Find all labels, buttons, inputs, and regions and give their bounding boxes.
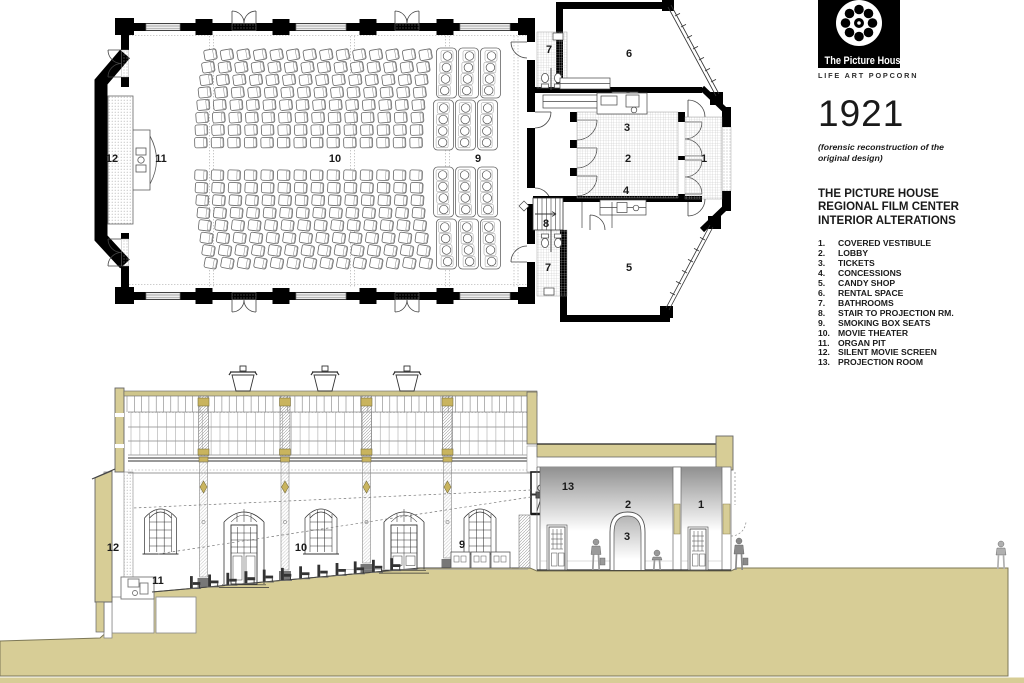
seat xyxy=(410,125,423,136)
seat xyxy=(213,207,226,219)
seat xyxy=(234,61,248,73)
legend-item-label: SILENT MOVIE SCREEN xyxy=(838,347,937,357)
seat xyxy=(377,182,390,193)
seat xyxy=(201,61,215,73)
seat xyxy=(295,195,308,206)
seat-profile xyxy=(247,577,255,580)
seat xyxy=(229,112,242,123)
column-shaft xyxy=(281,462,289,570)
seat xyxy=(248,87,261,99)
seat xyxy=(228,170,241,181)
legend-item-label: CANDY SHOP xyxy=(838,278,895,288)
box-seat xyxy=(439,194,448,203)
seat xyxy=(362,99,375,110)
door-swing-dashed xyxy=(731,472,746,536)
seat xyxy=(196,112,209,123)
seat xyxy=(311,125,324,136)
seat xyxy=(416,61,430,73)
seat xyxy=(197,207,210,219)
seat xyxy=(245,125,258,136)
seat xyxy=(303,48,317,60)
seat xyxy=(263,99,276,110)
box-seat xyxy=(462,205,471,214)
seat xyxy=(287,257,301,269)
box-seat xyxy=(485,234,494,243)
box-seat xyxy=(443,257,452,266)
seat xyxy=(198,220,212,232)
plan-room-label: 10 xyxy=(329,153,341,165)
seat xyxy=(352,48,366,60)
seat xyxy=(230,207,243,219)
seat xyxy=(204,257,218,269)
seat xyxy=(312,112,325,123)
seat xyxy=(296,99,309,110)
seat xyxy=(216,74,230,86)
seat xyxy=(394,125,407,136)
seat xyxy=(362,207,375,219)
seat xyxy=(261,137,274,148)
box-seat xyxy=(441,75,450,84)
seat xyxy=(344,170,357,181)
seat xyxy=(233,232,247,244)
box-seat xyxy=(483,127,492,136)
seat xyxy=(228,137,241,148)
column-shaft xyxy=(363,462,371,563)
seat xyxy=(402,48,416,60)
seat xyxy=(199,74,213,86)
box-seat xyxy=(442,63,451,72)
seat xyxy=(212,195,225,206)
seat xyxy=(397,87,410,99)
logo-tagline: LIFE ART POPCORN xyxy=(818,71,1018,80)
box-seat xyxy=(439,104,448,113)
seat xyxy=(412,99,425,110)
pedestrian-figure xyxy=(734,538,748,570)
roof-truss xyxy=(127,396,535,455)
seat xyxy=(415,74,429,86)
seat-profile xyxy=(245,571,248,584)
seat xyxy=(248,220,262,232)
seat xyxy=(327,182,340,193)
seat xyxy=(264,220,278,232)
seat xyxy=(297,87,310,99)
seat xyxy=(328,112,341,123)
seat xyxy=(330,87,343,99)
legend-item-label: MOVIE THEATER xyxy=(838,328,908,338)
legend-item-label: BATHROOMS xyxy=(838,298,894,308)
seat xyxy=(400,61,414,73)
plan-room-label: 5 xyxy=(626,262,632,274)
plan-room-label: 8 xyxy=(543,218,549,230)
seat xyxy=(363,87,376,99)
seat xyxy=(230,99,243,110)
seat xyxy=(220,257,234,269)
seat xyxy=(394,182,407,193)
seat-profile xyxy=(354,561,357,574)
seat xyxy=(280,207,293,219)
seat xyxy=(382,74,396,86)
seat xyxy=(317,61,331,73)
seat xyxy=(268,61,282,73)
legend-item-label: TICKETS xyxy=(838,258,875,268)
seat xyxy=(317,244,331,256)
seat xyxy=(263,207,276,219)
section-room-label: 10 xyxy=(295,542,307,554)
info-panel: The Picture House LIFE ART POPCORN 1921 … xyxy=(818,0,1018,368)
seat xyxy=(398,74,412,86)
column-capital xyxy=(442,449,453,455)
roof-band xyxy=(124,391,537,396)
pedestrian-figure xyxy=(996,541,1006,569)
year-title: 1921 xyxy=(818,93,1018,135)
seat xyxy=(398,232,412,244)
seat xyxy=(419,257,433,269)
seat xyxy=(251,244,265,256)
plan-room-label: 3 xyxy=(624,122,630,134)
seat xyxy=(361,112,374,123)
seat xyxy=(299,74,313,86)
box-seat xyxy=(486,246,495,255)
seat xyxy=(365,74,379,86)
seat xyxy=(282,232,296,244)
project-title-line1: THE PICTURE HOUSE xyxy=(818,188,1018,202)
cross-section xyxy=(0,366,1024,683)
seat xyxy=(310,137,323,148)
box-seat xyxy=(441,223,450,232)
seat xyxy=(361,182,374,193)
seat xyxy=(314,220,328,232)
seat xyxy=(198,87,211,99)
arched-window xyxy=(462,509,498,554)
seat xyxy=(411,112,424,123)
box-seat xyxy=(463,234,472,243)
seat xyxy=(413,220,427,232)
seat xyxy=(278,125,291,136)
seat xyxy=(379,99,392,110)
seat xyxy=(233,74,247,86)
seat xyxy=(383,61,397,73)
seat-profile xyxy=(302,572,310,575)
plan-room-label: 12 xyxy=(106,153,118,165)
seat xyxy=(281,220,295,232)
seat-profile xyxy=(336,563,339,576)
box-seat xyxy=(439,115,448,124)
room-legend: 1.COVERED VESTIBULE2.LOBBY3.TICKETS4.CON… xyxy=(818,239,1018,368)
seat xyxy=(212,182,225,193)
column-shaft xyxy=(200,462,208,577)
seat xyxy=(379,207,392,219)
box-seat xyxy=(439,127,448,136)
box-seat xyxy=(443,52,452,61)
seat xyxy=(270,48,284,60)
seat xyxy=(264,87,277,99)
seat xyxy=(286,48,300,60)
box-seat xyxy=(438,171,447,180)
seat xyxy=(229,195,242,206)
seat xyxy=(213,99,226,110)
seat-profile xyxy=(208,575,211,588)
seat xyxy=(332,74,346,86)
seat xyxy=(346,207,359,219)
seat xyxy=(246,207,259,219)
box-seat xyxy=(440,86,449,95)
seat xyxy=(316,232,330,244)
seat xyxy=(360,137,373,148)
seat xyxy=(369,257,383,269)
box-seat xyxy=(483,182,492,191)
seat-profile xyxy=(372,560,375,573)
floor-plan xyxy=(101,0,731,322)
seat xyxy=(261,170,274,181)
box-seat xyxy=(460,138,469,147)
seat-profile xyxy=(357,567,365,570)
section-room-label: 12 xyxy=(107,542,119,554)
seat xyxy=(200,232,214,244)
seat xyxy=(369,48,383,60)
seat xyxy=(244,170,257,181)
seat xyxy=(249,232,263,244)
seat xyxy=(211,170,224,181)
section-left-wall xyxy=(92,388,124,632)
film-reel-icon xyxy=(818,0,900,52)
project-title-line2: REGIONAL FILM CENTER xyxy=(818,201,1018,215)
seat-profile xyxy=(317,565,320,578)
basement xyxy=(104,472,196,638)
seat xyxy=(378,195,391,206)
seat xyxy=(253,48,267,60)
seat xyxy=(214,87,227,99)
seat xyxy=(315,74,329,86)
seat xyxy=(246,99,259,110)
section-room-label: 2 xyxy=(625,499,631,511)
box-seat xyxy=(482,171,491,180)
box-seat xyxy=(438,138,447,147)
seat xyxy=(266,74,280,86)
hall-right-parapet xyxy=(527,392,537,444)
plan-room-label: 7 xyxy=(546,44,552,56)
column-capital xyxy=(362,457,371,462)
box-seat xyxy=(464,246,473,255)
seat xyxy=(314,87,327,99)
seat xyxy=(277,170,290,181)
plan-room-label: 4 xyxy=(623,185,630,197)
seat xyxy=(313,207,326,219)
plan-room-label: 9 xyxy=(475,153,481,165)
box-seat xyxy=(440,205,449,214)
seat xyxy=(377,170,390,181)
seat xyxy=(215,220,229,232)
seat xyxy=(297,220,311,232)
proscenium-wall xyxy=(519,515,530,568)
seat xyxy=(295,112,308,123)
seat xyxy=(303,257,317,269)
seat xyxy=(218,61,232,73)
seat xyxy=(393,170,406,181)
legend-item-label: SMOKING BOX SEATS xyxy=(838,318,930,328)
seat-profile xyxy=(226,573,229,586)
section-room-label: 13 xyxy=(562,481,574,493)
seat xyxy=(319,48,333,60)
seat xyxy=(349,232,363,244)
seat-profile xyxy=(211,581,219,584)
seat-profile xyxy=(190,576,193,589)
legend-item-label: CONCESSIONS xyxy=(838,268,902,278)
box-seat xyxy=(485,223,494,232)
seat xyxy=(195,125,208,136)
seat xyxy=(216,232,230,244)
seat xyxy=(294,182,307,193)
seat xyxy=(353,257,367,269)
seat xyxy=(251,61,265,73)
seat xyxy=(235,244,249,256)
seat xyxy=(296,207,309,219)
arched-door xyxy=(379,509,429,573)
seat-profile xyxy=(284,574,292,577)
box-seat xyxy=(483,104,492,113)
seat xyxy=(395,99,408,110)
box-seat xyxy=(442,246,451,255)
seat xyxy=(364,220,378,232)
seat xyxy=(328,195,341,206)
seat xyxy=(270,257,284,269)
logo-title: The Picture House xyxy=(825,55,894,67)
box-seat xyxy=(462,86,471,95)
seat xyxy=(347,87,360,99)
seat xyxy=(268,244,282,256)
seat xyxy=(334,61,348,73)
seat xyxy=(261,182,274,193)
wall-gap xyxy=(527,446,537,472)
seat xyxy=(345,112,358,123)
seat xyxy=(220,48,234,60)
column-capital xyxy=(442,398,453,406)
seat xyxy=(196,195,209,206)
seat xyxy=(400,244,414,256)
seat xyxy=(395,207,408,219)
seat xyxy=(212,112,225,123)
seat xyxy=(394,112,407,123)
box-seat xyxy=(439,182,448,191)
ground-band xyxy=(0,678,1024,683)
box-seat xyxy=(463,223,472,232)
box-seat xyxy=(461,104,470,113)
section-room-label: 3 xyxy=(624,531,630,543)
ceiling-lines xyxy=(128,413,535,474)
legend-item-label: PROJECTION ROOM xyxy=(838,357,923,367)
seat xyxy=(345,195,358,206)
seat xyxy=(378,112,391,123)
seat xyxy=(329,99,342,110)
seat xyxy=(231,87,244,99)
seat xyxy=(382,232,396,244)
box-seat xyxy=(461,115,470,124)
seat xyxy=(419,48,433,60)
seat xyxy=(329,207,342,219)
logo: The Picture House xyxy=(818,0,900,68)
seat-profile xyxy=(229,579,237,582)
seat xyxy=(412,207,425,219)
seat xyxy=(367,244,381,256)
roof-vents xyxy=(229,366,421,391)
seat xyxy=(415,232,429,244)
seat xyxy=(365,232,379,244)
box-seat xyxy=(461,127,470,136)
seat xyxy=(411,195,424,206)
box-seat xyxy=(465,257,474,266)
seat xyxy=(385,48,399,60)
seat xyxy=(245,182,258,193)
seat xyxy=(394,195,407,206)
seat xyxy=(380,220,394,232)
box-seat xyxy=(484,86,493,95)
seat xyxy=(281,87,294,99)
theater-seats xyxy=(195,48,433,269)
seat xyxy=(320,257,334,269)
seat xyxy=(360,170,373,181)
box-seat xyxy=(463,75,472,84)
column-capital xyxy=(281,457,290,462)
seat xyxy=(348,74,362,86)
arched-window xyxy=(143,509,179,554)
arched-window xyxy=(303,509,339,554)
seat xyxy=(282,74,296,86)
box-seat xyxy=(486,63,495,72)
seat xyxy=(244,137,257,148)
seat xyxy=(344,125,357,136)
column-capital xyxy=(280,449,291,455)
column-capital xyxy=(361,449,372,455)
seat xyxy=(197,99,210,110)
seat xyxy=(351,244,365,256)
box-seat xyxy=(483,194,492,203)
seat xyxy=(261,125,274,136)
seat xyxy=(344,182,357,193)
seat-profile xyxy=(193,582,201,585)
box-seat xyxy=(487,257,496,266)
column-capital xyxy=(198,449,209,455)
seat xyxy=(278,112,291,123)
plan-room-label: 2 xyxy=(625,153,631,165)
box-seat xyxy=(483,115,492,124)
seat xyxy=(228,125,241,136)
legend-item-label: ORGAN PIT xyxy=(838,338,886,348)
seat xyxy=(344,137,357,148)
seat xyxy=(278,182,291,193)
box-seat xyxy=(484,205,493,214)
seat xyxy=(312,195,325,206)
seat xyxy=(310,170,323,181)
legend-item-number: 13. xyxy=(818,358,838,368)
box-seat xyxy=(485,75,494,84)
organ-pit xyxy=(133,130,157,190)
box-seat xyxy=(487,52,496,61)
smoking-box-seats xyxy=(434,48,501,269)
seat xyxy=(402,257,416,269)
seat xyxy=(231,220,245,232)
seat xyxy=(410,170,423,181)
seat xyxy=(237,48,251,60)
legend-item: 13.PROJECTION ROOM xyxy=(818,358,1018,368)
column-capital xyxy=(198,398,209,406)
seat xyxy=(202,244,216,256)
seat xyxy=(360,125,373,136)
column-capital xyxy=(199,457,208,462)
seat-profile xyxy=(281,568,284,581)
seat xyxy=(417,244,431,256)
seat-profile xyxy=(390,558,393,571)
seat xyxy=(311,182,324,193)
seat xyxy=(245,112,258,123)
